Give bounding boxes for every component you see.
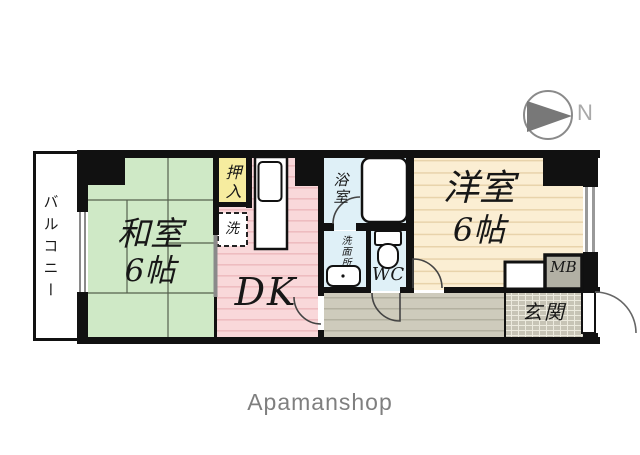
laundry-space <box>218 213 247 246</box>
meter-box <box>545 255 582 289</box>
washitsu-fusuma-door <box>214 235 218 297</box>
youshitsu-window <box>583 187 598 252</box>
genkan-floor <box>505 293 583 337</box>
entrance-door-leaf <box>582 292 595 333</box>
toilet-tank <box>375 231 401 245</box>
dk-door-opening <box>318 296 324 330</box>
hallway-floor <box>324 293 505 337</box>
toilet-bowl <box>378 244 398 268</box>
compass-icon <box>524 91 572 139</box>
oshiire-closet <box>216 154 247 205</box>
balcony-window <box>77 212 88 292</box>
floorplan-page: バルコニー 和室 6帖 押入 洗 DK 浴室 洗面所 WC 洋室 6帖 MB 玄… <box>0 0 640 455</box>
entrance-step <box>505 262 545 289</box>
washroom-sink-drain <box>341 274 344 277</box>
bathtub <box>362 158 407 222</box>
kitchen-sink <box>259 162 282 201</box>
floorplan-drawing <box>0 0 640 455</box>
entrance-door-arc <box>595 292 636 333</box>
balcony-outline <box>35 153 79 340</box>
